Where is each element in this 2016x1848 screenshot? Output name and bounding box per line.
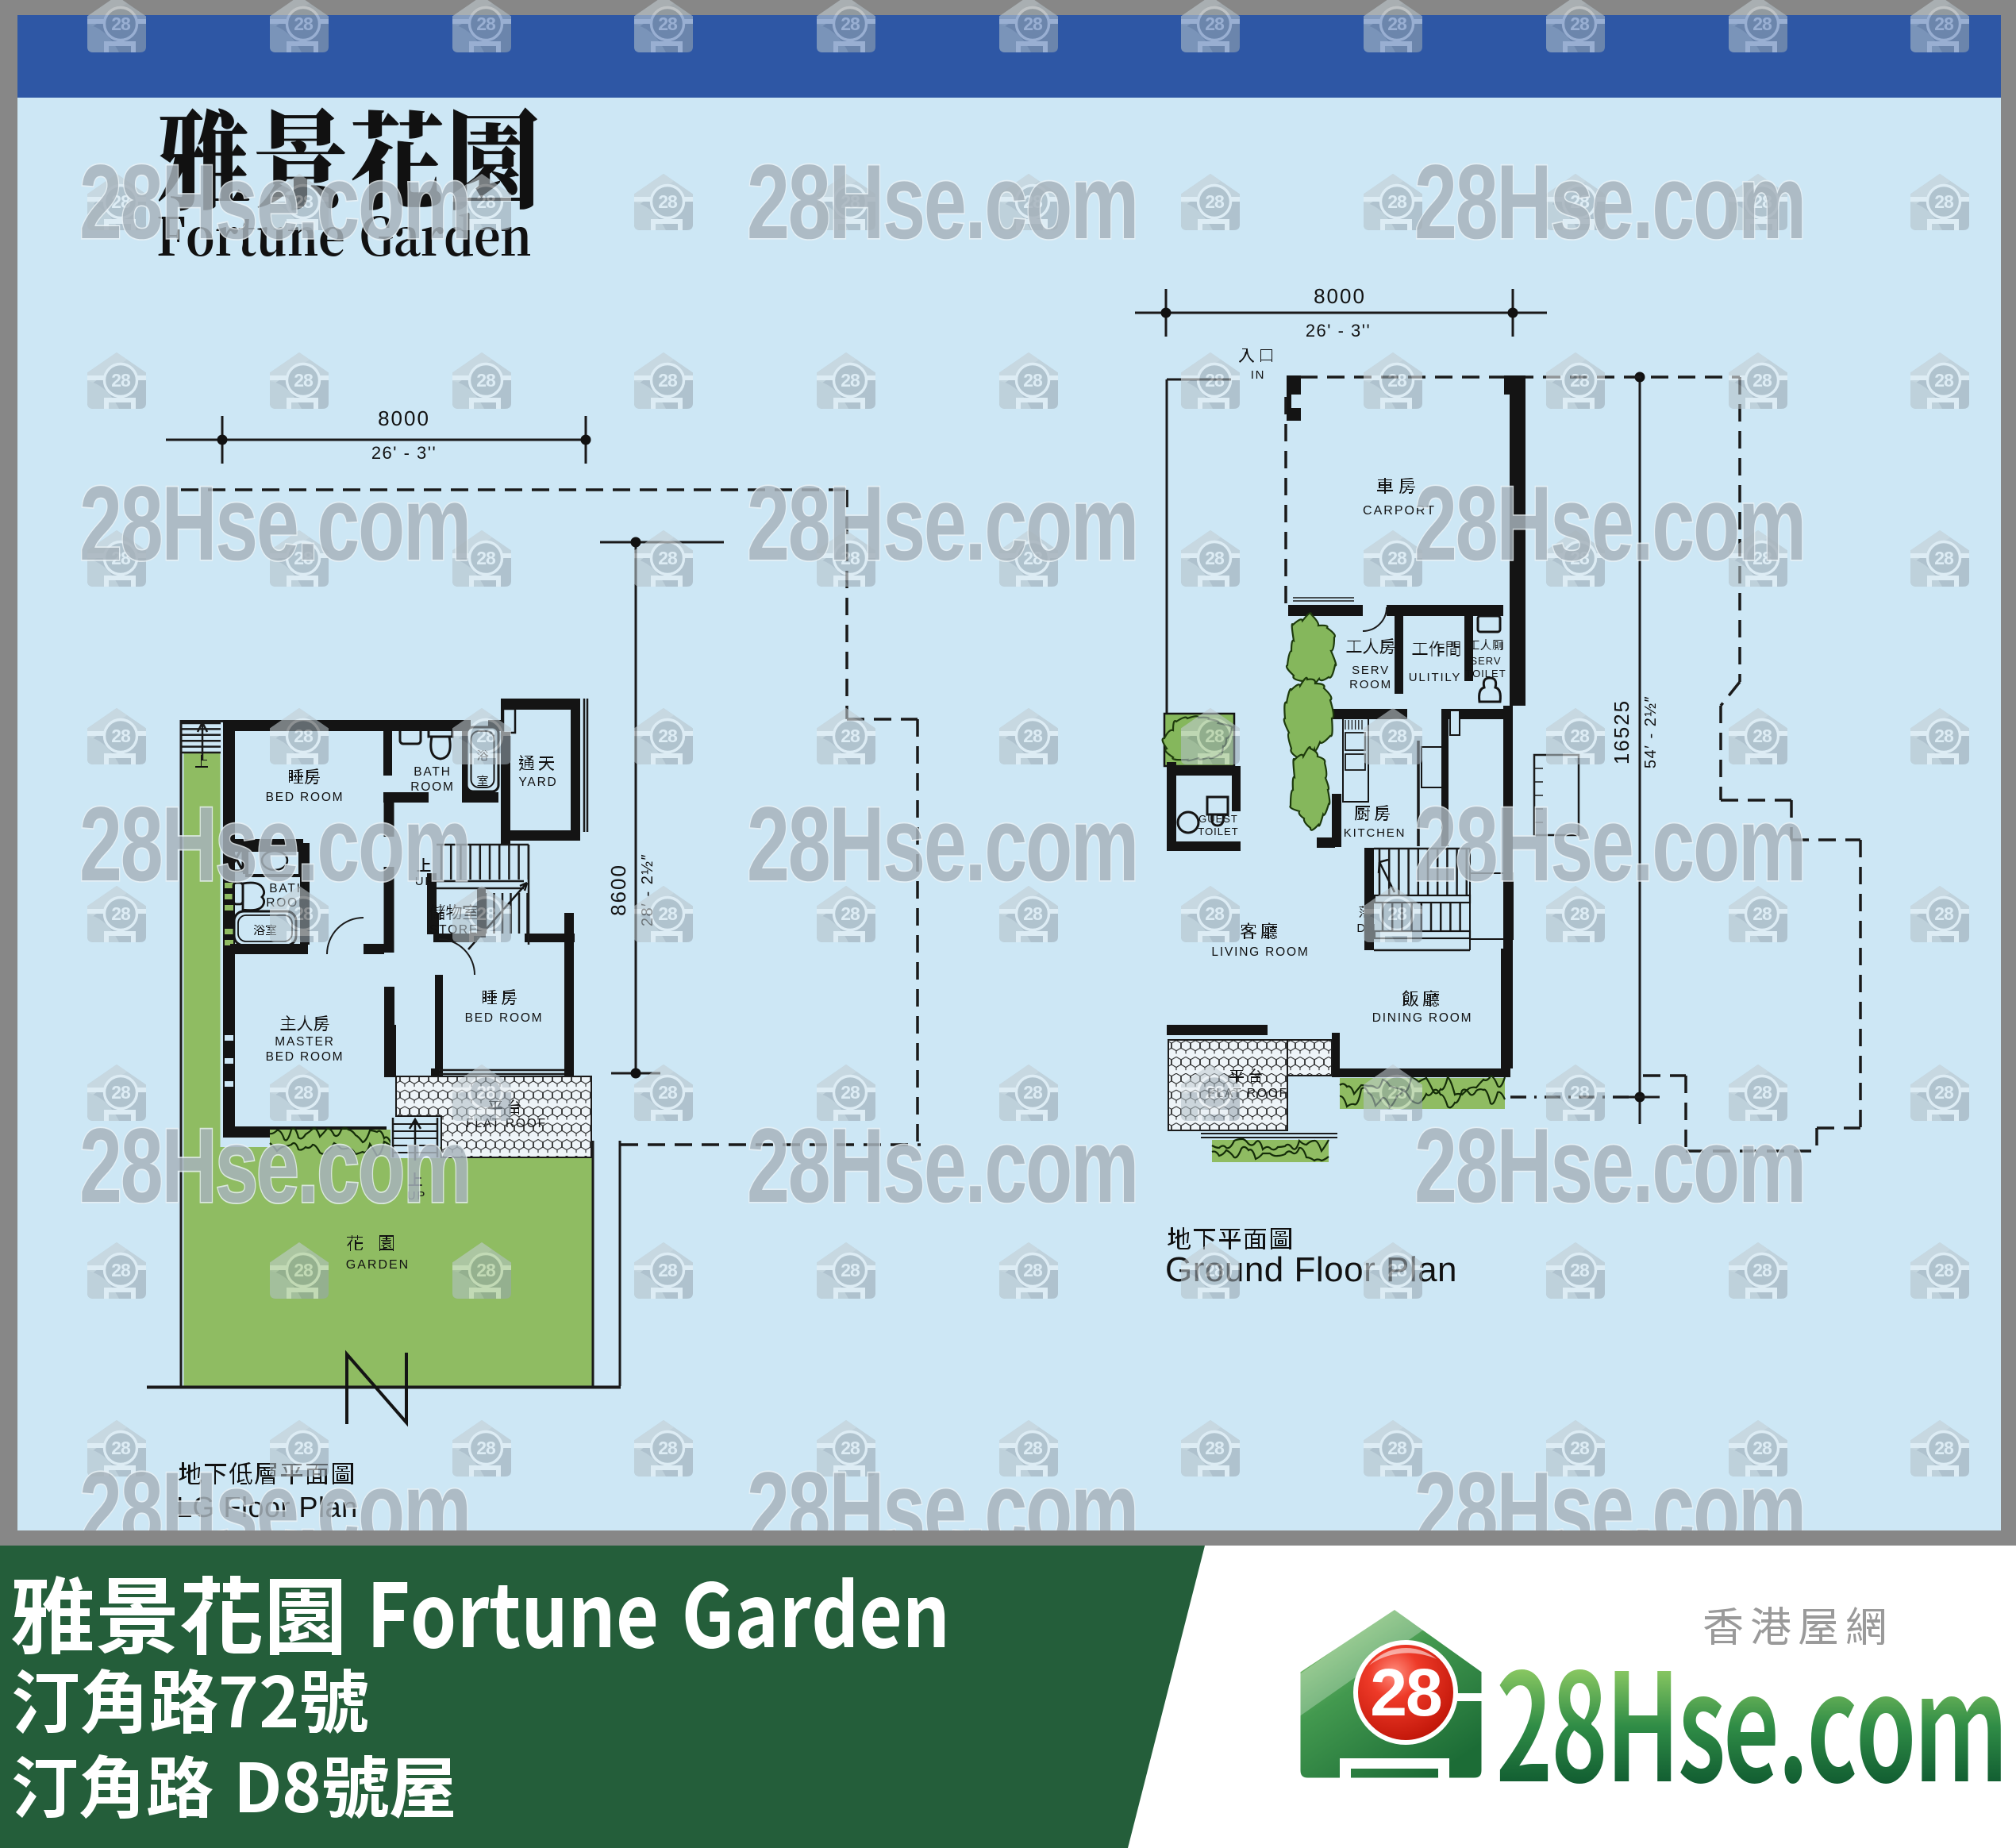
- svg-text:LIVING ROOM: LIVING ROOM: [1211, 945, 1309, 959]
- svg-text:KITCHEN: KITCHEN: [1344, 826, 1406, 840]
- svg-text:28Hse.com: 28Hse.com: [79, 786, 470, 903]
- svg-text:28Hse.com: 28Hse.com: [747, 144, 1137, 261]
- svg-text:16525: 16525: [1610, 699, 1633, 764]
- svg-text:BATH: BATH: [414, 765, 451, 779]
- svg-text:28Hse.com: 28Hse.com: [79, 144, 470, 261]
- svg-text:ROOM: ROOM: [1349, 678, 1392, 691]
- svg-text:8000: 8000: [1314, 284, 1366, 308]
- svg-text:ULITILY: ULITILY: [1409, 671, 1462, 684]
- svg-text:28Hse.com: 28Hse.com: [1414, 144, 1805, 261]
- svg-text:BED ROOM: BED ROOM: [266, 1050, 344, 1064]
- svg-text:MASTER: MASTER: [275, 1035, 334, 1049]
- svg-text:8000: 8000: [378, 406, 430, 430]
- svg-text:IN: IN: [1251, 368, 1266, 382]
- svg-text:8600: 8600: [606, 864, 630, 916]
- svg-text:28Hse.com: 28Hse.com: [1414, 465, 1805, 583]
- svg-text:SERV: SERV: [1470, 655, 1501, 667]
- svg-text:28Hse.com: 28Hse.com: [747, 1107, 1137, 1225]
- svg-text:YARD: YARD: [518, 776, 557, 789]
- svg-text:26' - 3'': 26' - 3'': [371, 443, 437, 463]
- svg-text:26' - 3'': 26' - 3'': [1306, 321, 1371, 341]
- svg-text:28Hse.com: 28Hse.com: [79, 465, 470, 583]
- svg-text:28Hse.com: 28Hse.com: [747, 786, 1137, 903]
- svg-text:SERV: SERV: [1352, 664, 1390, 677]
- svg-text:28Hse.com: 28Hse.com: [1414, 1107, 1805, 1225]
- svg-text:BED ROOM: BED ROOM: [465, 1011, 544, 1025]
- svg-text:28: 28: [1370, 1655, 1441, 1730]
- svg-text:GARDEN: GARDEN: [346, 1258, 410, 1272]
- svg-text:TOILET: TOILET: [1465, 668, 1506, 680]
- svg-text:GUEST: GUEST: [1198, 813, 1238, 825]
- svg-text:28Hse.com: 28Hse.com: [747, 465, 1137, 583]
- svg-text:TOILET: TOILET: [1198, 826, 1238, 837]
- svg-text:54′ - 2½″: 54′ - 2½″: [1642, 695, 1660, 768]
- svg-text:28Hse.com: 28Hse.com: [79, 1107, 470, 1225]
- svg-text:DINING ROOM: DINING ROOM: [1372, 1011, 1473, 1025]
- svg-text:28Hse.com: 28Hse.com: [1414, 786, 1805, 903]
